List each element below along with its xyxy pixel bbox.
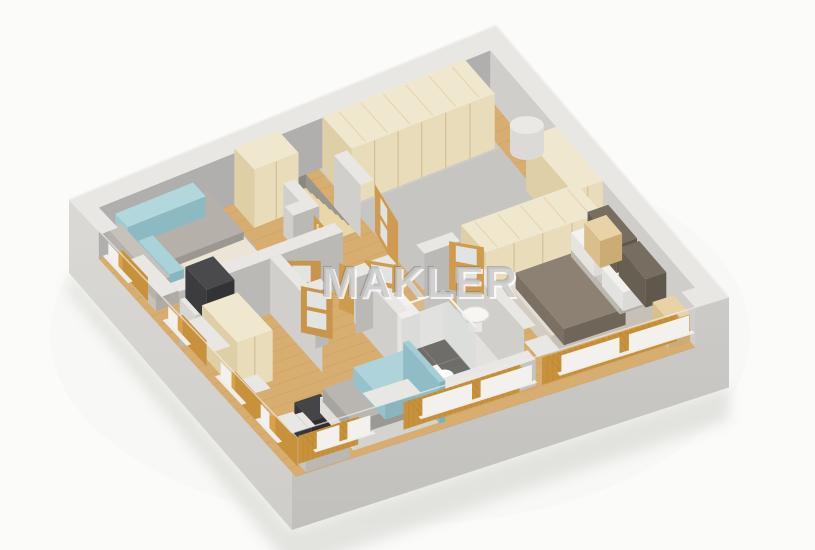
svg-text:MAKLER: MAKLER: [321, 258, 518, 307]
